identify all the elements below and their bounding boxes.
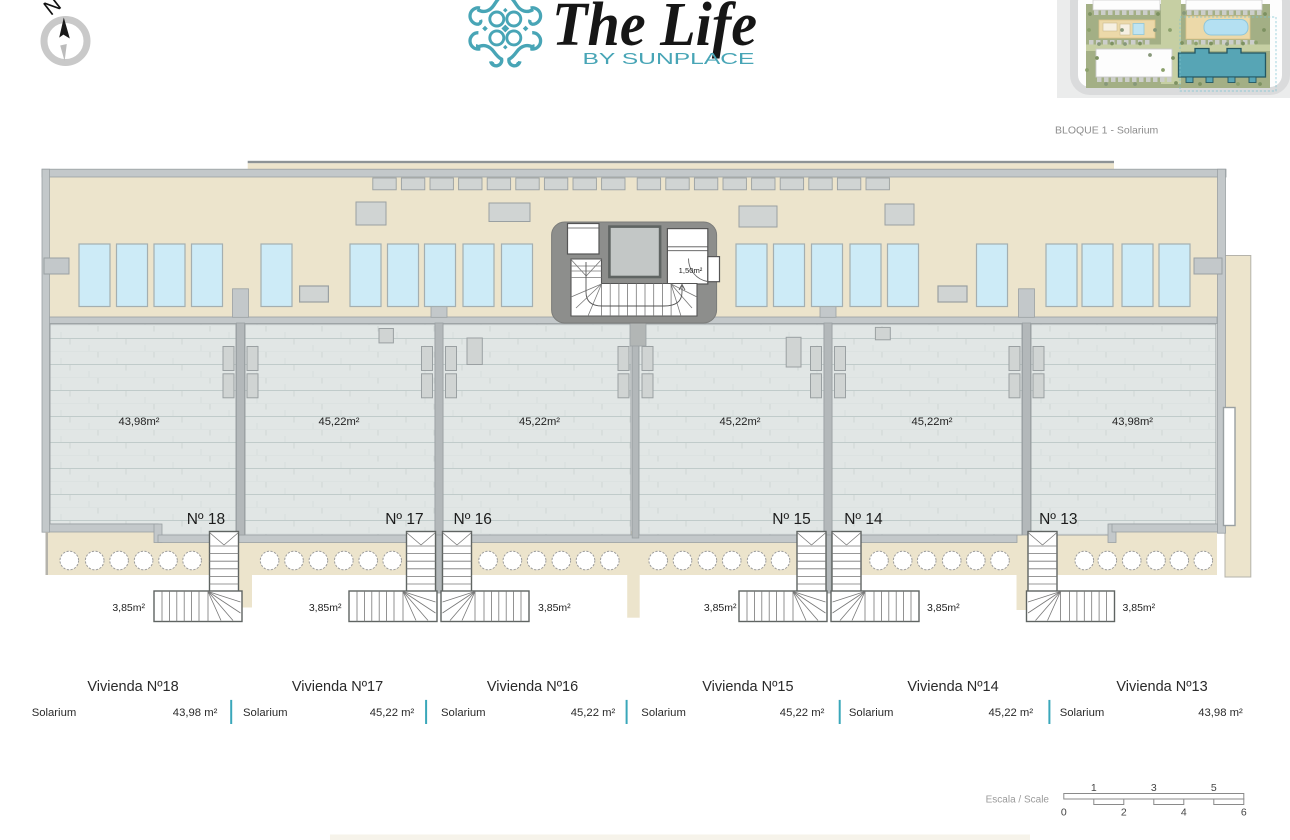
svg-text:45,22m²: 45,22m² (719, 416, 760, 428)
svg-text:45,22 m²: 45,22 m² (370, 707, 415, 719)
svg-text:6: 6 (1241, 807, 1247, 819)
svg-text:Nº 16: Nº 16 (454, 511, 492, 528)
svg-text:Vivienda Nº18: Vivienda Nº18 (87, 679, 178, 695)
svg-text:43,98m²: 43,98m² (118, 416, 159, 428)
svg-text:3,85m²: 3,85m² (309, 602, 342, 614)
svg-text:Nº 15: Nº 15 (772, 511, 810, 528)
svg-text:Vivienda Nº14: Vivienda Nº14 (907, 679, 998, 695)
svg-text:BLOQUE 1 - Solarium: BLOQUE 1 - Solarium (1055, 125, 1159, 137)
svg-text:Vivienda Nº16: Vivienda Nº16 (487, 679, 578, 695)
svg-text:45,22 m²: 45,22 m² (780, 707, 825, 719)
svg-text:Vivienda Nº13: Vivienda Nº13 (1116, 679, 1207, 695)
svg-text:Solarium: Solarium (1060, 707, 1105, 719)
svg-text:45,22m²: 45,22m² (519, 416, 560, 428)
svg-text:43,98 m²: 43,98 m² (173, 707, 218, 719)
svg-text:Nº 14: Nº 14 (844, 511, 883, 528)
svg-text:BY SUNPLACE: BY SUNPLACE (583, 51, 755, 68)
svg-text:5: 5 (1211, 782, 1217, 794)
svg-text:1,50m²: 1,50m² (679, 266, 703, 275)
svg-text:45,22m²: 45,22m² (911, 416, 952, 428)
svg-text:Solarium: Solarium (243, 707, 288, 719)
svg-text:Solarium: Solarium (641, 707, 686, 719)
svg-text:45,22 m²: 45,22 m² (989, 707, 1034, 719)
svg-text:3,85m²: 3,85m² (704, 602, 737, 614)
svg-text:Nº 17: Nº 17 (385, 511, 423, 528)
svg-text:2: 2 (1121, 807, 1127, 819)
svg-text:Escala / Scale: Escala / Scale (986, 795, 1050, 806)
svg-text:45,22 m²: 45,22 m² (571, 707, 616, 719)
svg-text:3: 3 (1151, 782, 1157, 794)
svg-text:Vivienda Nº17: Vivienda Nº17 (292, 679, 383, 695)
svg-text:Vivienda Nº15: Vivienda Nº15 (702, 679, 793, 695)
svg-text:4: 4 (1181, 807, 1187, 819)
svg-text:3,85m²: 3,85m² (927, 602, 960, 614)
svg-text:3,85m²: 3,85m² (538, 602, 571, 614)
svg-text:Nº 18: Nº 18 (187, 511, 225, 528)
svg-text:3,85m²: 3,85m² (1123, 602, 1156, 614)
svg-text:1: 1 (1091, 782, 1097, 794)
svg-text:Solarium: Solarium (441, 707, 486, 719)
svg-text:43,98 m²: 43,98 m² (1198, 707, 1243, 719)
svg-text:43,98m²: 43,98m² (1112, 416, 1153, 428)
svg-text:Solarium: Solarium (32, 707, 77, 719)
svg-text:Nº 13: Nº 13 (1039, 511, 1077, 528)
svg-text:0: 0 (1061, 807, 1067, 819)
svg-text:Solarium: Solarium (849, 707, 894, 719)
svg-text:45,22m²: 45,22m² (318, 416, 359, 428)
svg-text:3,85m²: 3,85m² (112, 602, 145, 614)
